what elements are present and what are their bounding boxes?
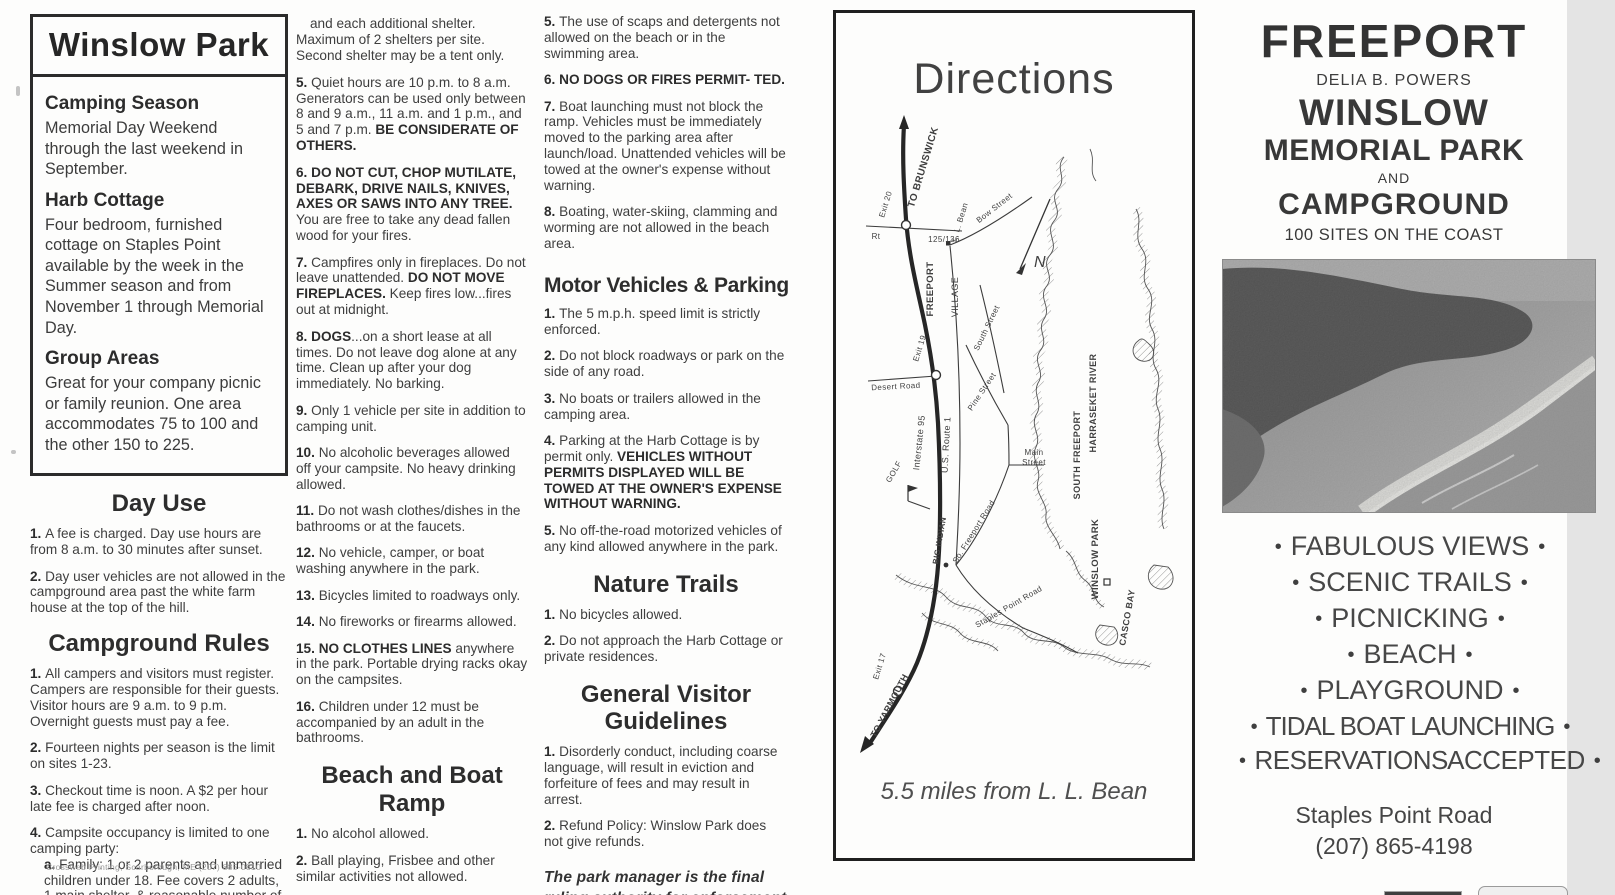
day-use-heading: Day Use bbox=[30, 490, 288, 518]
map-label-harraseket-river: HARRASEKET RIVER bbox=[1088, 353, 1098, 452]
feature-item: •PICNICKING• bbox=[1230, 601, 1590, 637]
map-label-street: Street bbox=[1022, 458, 1046, 467]
feature-item: •TIDAL BOAT LAUNCHING• bbox=[1230, 709, 1590, 744]
list-item: 3. No boats or trailers allowed in the c… bbox=[544, 391, 788, 423]
map-label-main: Main bbox=[1025, 448, 1044, 457]
map-label-big-indian: BIG INDIAN bbox=[931, 516, 948, 565]
feature-label: PLAYGROUND bbox=[1316, 675, 1503, 705]
map-label-north: N bbox=[1034, 254, 1046, 271]
list-item: 2. Fourteen nights per season is the lim… bbox=[30, 740, 288, 772]
list-item: 10. No alcoholic beverages allowed off y… bbox=[296, 445, 528, 493]
map-label-south-freeport: SOUTH FREEPORT bbox=[1072, 411, 1082, 500]
mastercard-logo: MasterCard bbox=[1478, 886, 1568, 895]
list-item: 2. Ball playing, Frisbee and other simil… bbox=[296, 853, 528, 885]
map-label-exit-17: Exit 17 bbox=[871, 652, 888, 681]
list-item: 5. No off-the-road motorized vehicles of… bbox=[544, 523, 788, 555]
list-item: 6. NO DOGS OR FIRES PERMIT- TED. bbox=[544, 72, 788, 88]
list-item: 1. Disorderly conduct, including coarse … bbox=[544, 744, 788, 808]
map-label-golf: GOLF bbox=[884, 459, 903, 484]
map-label-freeport: FREEPORT bbox=[925, 262, 936, 317]
list-item: 1. No bicycles allowed. bbox=[544, 607, 788, 623]
beach-boat-list: 1. No alcohol allowed.2. Ball playing, F… bbox=[296, 826, 528, 895]
map-label-exit-20: Exit 20 bbox=[877, 190, 894, 219]
map-label-winslow-park: WINSLOW PARK bbox=[1090, 519, 1101, 600]
feature-label: SCENIC TRAILS bbox=[1308, 567, 1512, 597]
panel-winslow-info: Winslow Park Camping Season Memorial Day… bbox=[30, 14, 288, 895]
nature-trails-list: 1. No bicycles allowed.2. Do not approac… bbox=[544, 607, 788, 665]
list-item: 11. Do not wash clothes/dishes in the ba… bbox=[296, 503, 528, 535]
payment-cards: VISA MasterCard bbox=[1222, 886, 1568, 895]
beach-boat-list-2: 5. The use of scaps and detergents not a… bbox=[544, 14, 788, 252]
section-body: Four bedroom, furnished cottage on Stapl… bbox=[45, 215, 273, 338]
bullet-icon: • bbox=[1513, 680, 1520, 702]
visitor-guidelines-list: 1. Disorderly conduct, including coarse … bbox=[544, 744, 788, 850]
bullet-icon: • bbox=[1498, 608, 1505, 630]
address-line: Staples Point Road bbox=[1222, 802, 1566, 829]
day-use-list: 1. A fee is charged. Day use hours are f… bbox=[30, 526, 288, 616]
bullet-icon: • bbox=[1315, 608, 1322, 630]
aerial-photo bbox=[1222, 259, 1596, 513]
map-label-rt: Rt bbox=[872, 232, 881, 241]
cover-panel: FREEPORT DELIA B. POWERS WINSLOW MEMORIA… bbox=[1222, 14, 1598, 895]
cover-name-line1: WINSLOW bbox=[1222, 92, 1566, 134]
section-heading: Group Areas bbox=[45, 348, 273, 370]
nature-trails-heading: Nature Trails bbox=[544, 571, 788, 599]
list-item: 5. The use of scaps and detergents not a… bbox=[544, 14, 788, 62]
list-item: 2. Do not approach the Harb Cottage or p… bbox=[544, 633, 788, 665]
feature-label: FABULOUS VIEWS bbox=[1291, 531, 1530, 561]
section-heading: Camping Season bbox=[45, 93, 273, 115]
feature-item: •RESERVATIONS ACCEPTED• bbox=[1230, 743, 1590, 778]
directions-panel: Directions bbox=[833, 10, 1195, 861]
visa-logo: VISA bbox=[1384, 891, 1462, 895]
list-item: 2. Refund Policy: Winslow Park does not … bbox=[544, 818, 788, 850]
map-label-exit-19: Exit 19 bbox=[911, 334, 928, 363]
panel-rules-continued: and each additional shelter. Maximum of … bbox=[296, 16, 528, 895]
motor-vehicles-list: 1. The 5 m.p.h. speed limit is strictly … bbox=[544, 306, 788, 555]
winslow-park-box: Winslow Park Camping Season Memorial Day… bbox=[30, 14, 288, 476]
directions-title: Directions bbox=[836, 55, 1192, 104]
exit-19-marker bbox=[932, 371, 941, 380]
map-label-bow-street: Bow Street bbox=[975, 191, 1015, 225]
panel-rules-third: 5. The use of scaps and detergents not a… bbox=[544, 14, 788, 895]
bullet-icon: • bbox=[1251, 716, 1257, 738]
printer-credit: Crossweb Printing, Scarborough, ME (207)… bbox=[46, 862, 261, 872]
box-body: Camping Season Memorial Day Weekend thro… bbox=[33, 77, 285, 473]
list-item: 1. No alcohol allowed. bbox=[296, 826, 528, 842]
list-item: 2. Do not block roadways or park on the … bbox=[544, 348, 788, 380]
section-body: Memorial Day Weekend through the last we… bbox=[45, 118, 273, 180]
list-item: 5. Quiet hours are 10 p.m. to 8 a.m. Gen… bbox=[296, 75, 528, 154]
feature-label: RESERVATIONS ACCEPTED bbox=[1255, 745, 1585, 775]
map-label-to-yarmouth: TO YARMOUTH bbox=[868, 672, 910, 739]
cover-title: FREEPORT bbox=[1222, 14, 1566, 68]
feature-item: •FABULOUS VIEWS• bbox=[1230, 529, 1590, 565]
list-item: 1. The 5 m.p.h. speed limit is strictly … bbox=[544, 306, 788, 338]
list-item: 4. Campsite occupancy is limited to one … bbox=[30, 825, 288, 895]
features-list: •FABULOUS VIEWS••SCENIC TRAILS••PICNICKI… bbox=[1230, 529, 1590, 778]
motor-vehicles-heading: Motor Vehicles & Parking bbox=[544, 274, 788, 298]
directions-map: TO BRUNSWICK Exit 20 Rt 125/136 L. L. Be… bbox=[838, 113, 1188, 768]
campground-rules-list: 1. All campers and visitors must registe… bbox=[30, 666, 288, 895]
rules-continuation: and each additional shelter. Maximum of … bbox=[296, 16, 528, 64]
campground-rules-list-2: 5. Quiet hours are 10 p.m. to 8 a.m. Gen… bbox=[296, 75, 528, 747]
map-label-village: VILLAGE bbox=[950, 277, 960, 317]
bullet-icon: • bbox=[1466, 644, 1473, 666]
bullet-icon: • bbox=[1239, 750, 1246, 772]
winslow-park-marker bbox=[1104, 579, 1110, 585]
feature-label: TIDAL BOAT LAUNCHING bbox=[1266, 711, 1555, 741]
section-body: Great for your company picnic or family … bbox=[45, 373, 273, 455]
bullet-icon: • bbox=[1300, 680, 1307, 702]
scan-artifact bbox=[11, 450, 16, 454]
bullet-icon: • bbox=[1594, 750, 1601, 772]
section-heading: Harb Cottage bbox=[45, 190, 273, 212]
map-label-interstate-95: Interstate 95 bbox=[911, 415, 927, 471]
feature-item: •SCENIC TRAILS• bbox=[1230, 565, 1590, 601]
list-item: 4. Parking at the Harb Cottage is by per… bbox=[544, 433, 788, 512]
list-item: 15. NO CLOTHES LINES anywhere in the par… bbox=[296, 641, 528, 689]
bullet-icon: • bbox=[1275, 536, 1282, 558]
north-road-arrowhead bbox=[899, 115, 909, 129]
list-item: 1. All campers and visitors must registe… bbox=[30, 666, 288, 730]
cover-header: FREEPORT DELIA B. POWERS WINSLOW MEMORIA… bbox=[1222, 14, 1566, 245]
list-item: 16. Children under 12 must be accompanie… bbox=[296, 699, 528, 747]
list-item: 7. Campfires only in fireplaces. Do not … bbox=[296, 255, 528, 319]
cover-and: AND bbox=[1222, 170, 1566, 186]
map-label-south-street: South Street bbox=[972, 303, 1002, 352]
visitor-guidelines-heading: General Visitor Guidelines bbox=[544, 681, 788, 736]
golf-flag-icon bbox=[908, 485, 918, 492]
exit-20-marker bbox=[902, 221, 911, 230]
list-item: 8. Boating, water-skiing, clamming and w… bbox=[544, 204, 788, 252]
bullet-icon: • bbox=[1563, 716, 1569, 738]
cover-dedication: DELIA B. POWERS bbox=[1222, 72, 1566, 90]
big-indian-marker bbox=[944, 563, 949, 568]
feature-item: •PLAYGROUND• bbox=[1230, 673, 1590, 709]
bullet-icon: • bbox=[1538, 536, 1545, 558]
campground-rules-heading: Campground Rules bbox=[30, 630, 288, 658]
box-title: Winslow Park bbox=[33, 17, 285, 77]
feature-label: PICNICKING bbox=[1331, 603, 1489, 633]
north-arrow-head bbox=[1016, 263, 1026, 275]
bullet-icon: • bbox=[1292, 572, 1299, 594]
feature-label: BEACH bbox=[1363, 639, 1456, 669]
list-item: 6. DO NOT CUT, CHOP MUTILATE, DEBARK, DR… bbox=[296, 165, 528, 244]
map-label-ll-bean: L. L. Bean bbox=[949, 202, 969, 243]
list-item: 12. No vehicle, camper, or boat washing … bbox=[296, 545, 528, 577]
list-item: 2. Day user vehicles are not allowed in … bbox=[30, 569, 288, 617]
park-manager-note: The park manager is the final ruling aut… bbox=[544, 868, 788, 895]
scan-artifact bbox=[16, 86, 20, 96]
cover-name-line3: CAMPGROUND bbox=[1222, 188, 1566, 222]
brochure-scan: Winslow Park Camping Season Memorial Day… bbox=[0, 0, 1615, 895]
map-label-us-route-1: U.S. Route 1 bbox=[940, 416, 953, 473]
map-label-casco-bay: CASCO BAY bbox=[1117, 589, 1137, 647]
list-item: 9. Only 1 vehicle per site in addition t… bbox=[296, 403, 528, 435]
list-item: 13. Bicycles limited to roadways only. bbox=[296, 588, 528, 604]
list-item: 8. DOGS...on a short lease at all times.… bbox=[296, 329, 528, 393]
bullet-icon: • bbox=[1347, 644, 1354, 666]
map-label-desert-road: Desert Road bbox=[871, 381, 921, 393]
bullet-icon: • bbox=[1521, 572, 1528, 594]
beach-boat-heading: Beach and Boat Ramp bbox=[296, 762, 528, 818]
phone-number: (207) 865-4198 bbox=[1222, 833, 1566, 860]
map-caption: 5.5 miles from L. L. Bean bbox=[836, 778, 1192, 806]
cover-tagline: 100 SITES ON THE COAST bbox=[1222, 226, 1566, 245]
cover-name-line2: MEMORIAL PARK bbox=[1222, 134, 1566, 168]
list-item: 7. Boat launching must not block the ram… bbox=[544, 99, 788, 194]
list-item: 14. No fireworks or firearms allowed. bbox=[296, 614, 528, 630]
feature-item: •BEACH• bbox=[1230, 637, 1590, 673]
list-item: 1. A fee is charged. Day use hours are f… bbox=[30, 526, 288, 558]
map-label-to-brunswick: TO BRUNSWICK bbox=[906, 125, 941, 208]
list-item: 3. Checkout time is noon. A $2 per hour … bbox=[30, 783, 288, 815]
